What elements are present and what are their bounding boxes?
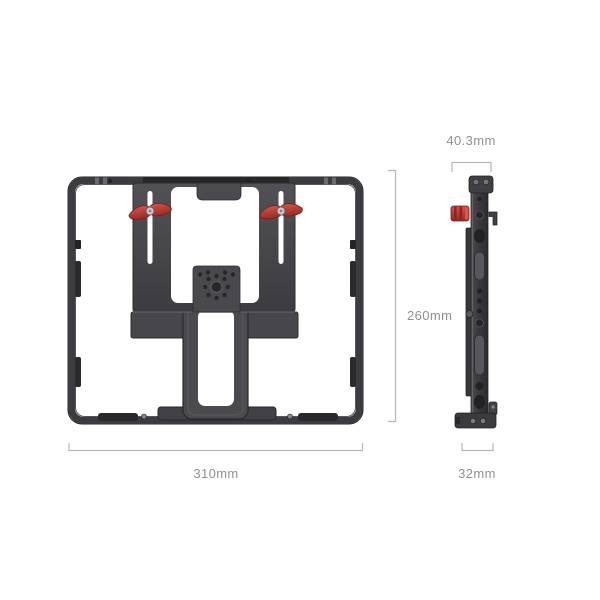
screw-icon (480, 418, 485, 423)
side-hook-tab (489, 212, 497, 225)
right-adjustment-slot (279, 191, 284, 264)
left-edge-notch (75, 240, 81, 249)
left-wing-plate (131, 312, 190, 338)
bracket-front-width (69, 443, 363, 451)
dimension-label-side-bottom-width: 32mm (437, 466, 517, 481)
cage-lower-assembly (131, 304, 298, 420)
screw-icon (288, 414, 293, 419)
bottom-rubber-pad (98, 413, 138, 421)
screw-icon (473, 179, 479, 185)
screw-icon (466, 311, 473, 318)
bracket-side-top-width (452, 163, 491, 173)
tablet-cage-side-profile-view (451, 176, 497, 428)
bottom-rubber-pad (298, 413, 338, 421)
left-adjustment-slot (148, 191, 153, 264)
left-clamp-tab (75, 357, 81, 387)
diagram-artwork (0, 0, 600, 600)
red-knob-icon (451, 206, 469, 221)
right-clamp-tab (350, 357, 356, 387)
tablet-cage-front-view (68, 177, 363, 425)
right-wing-plate (245, 312, 298, 338)
bracket-side-bottom-width (462, 443, 493, 451)
mounting-hole-cluster (193, 266, 240, 312)
screw-icon (483, 179, 489, 185)
dimension-label-front-height: 260mm (407, 308, 452, 323)
left-clamp-tab (75, 261, 81, 297)
quarter-inch-thread-icon (211, 282, 222, 293)
right-edge-notch (350, 240, 356, 249)
dimension-label-front-width: 310mm (176, 466, 256, 481)
screw-icon (470, 418, 475, 423)
product-diagram-page: 40.3mm 260mm 310mm 32mm (0, 0, 600, 600)
kickstand-opening (198, 310, 234, 406)
top-notch-tab (197, 183, 241, 200)
center-mounting-plate (128, 183, 303, 313)
dimension-label-side-top-width: 40.3mm (431, 133, 511, 148)
right-clamp-tab (350, 261, 356, 297)
bracket-front-height (388, 171, 396, 422)
screw-icon (142, 414, 147, 419)
